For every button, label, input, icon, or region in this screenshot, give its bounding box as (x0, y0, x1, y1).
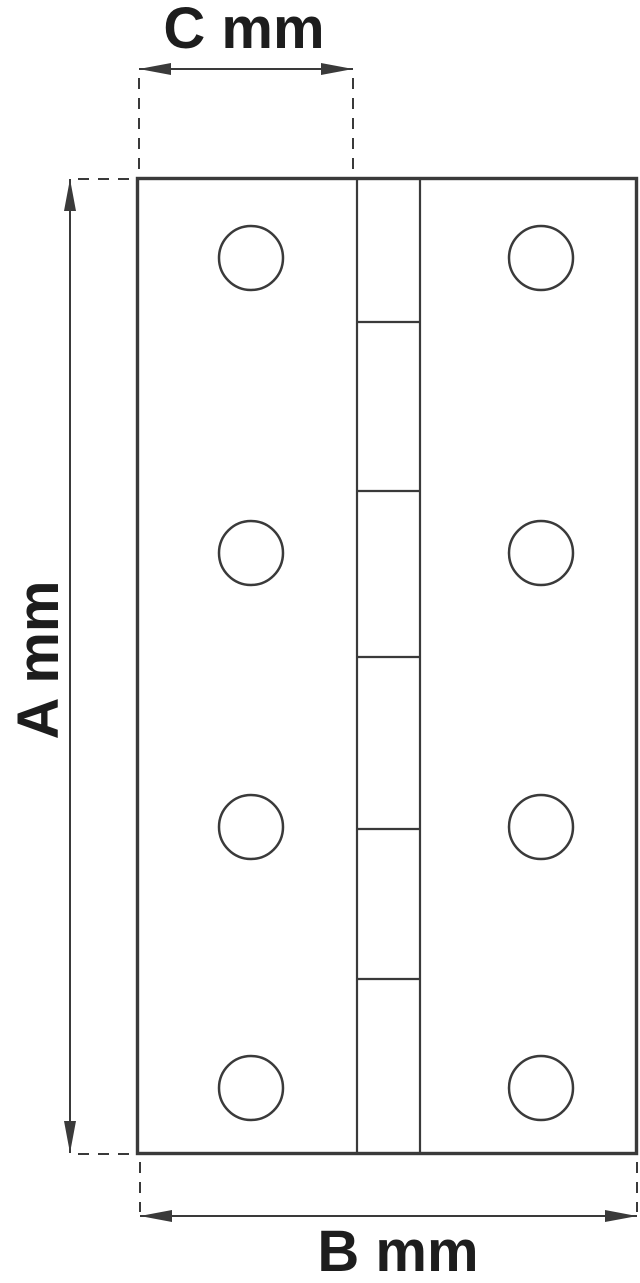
hinge-body (138, 179, 637, 1154)
screw-hole (219, 226, 283, 290)
screw-holes (219, 226, 573, 1120)
hinge-outline (138, 179, 637, 1154)
hinge-dimension-diagram: C mm A mm B mm (0, 0, 640, 1283)
diagram-canvas: C mm A mm B mm (0, 0, 640, 1283)
screw-hole (219, 1056, 283, 1120)
arrowhead-down-icon (64, 1121, 76, 1153)
arrowhead-left-icon (140, 1210, 172, 1222)
arrowhead-left-icon (139, 63, 171, 75)
arrowhead-right-icon (321, 63, 353, 75)
dimension-a-label: A mm (6, 581, 71, 740)
screw-hole (219, 521, 283, 585)
screw-hole (509, 226, 573, 290)
arrowhead-right-icon (605, 1210, 637, 1222)
screw-hole (509, 795, 573, 859)
dimension-b: B mm (140, 1162, 637, 1283)
dimension-b-label: B mm (317, 1219, 478, 1283)
screw-hole (509, 521, 573, 585)
dimension-a: A mm (6, 179, 133, 1154)
dimension-c-label: C mm (163, 0, 324, 61)
screw-hole (219, 795, 283, 859)
dimension-c: C mm (139, 0, 353, 174)
arrowhead-up-icon (64, 179, 76, 211)
screw-hole (509, 1056, 573, 1120)
knuckle-dividers (357, 322, 420, 979)
